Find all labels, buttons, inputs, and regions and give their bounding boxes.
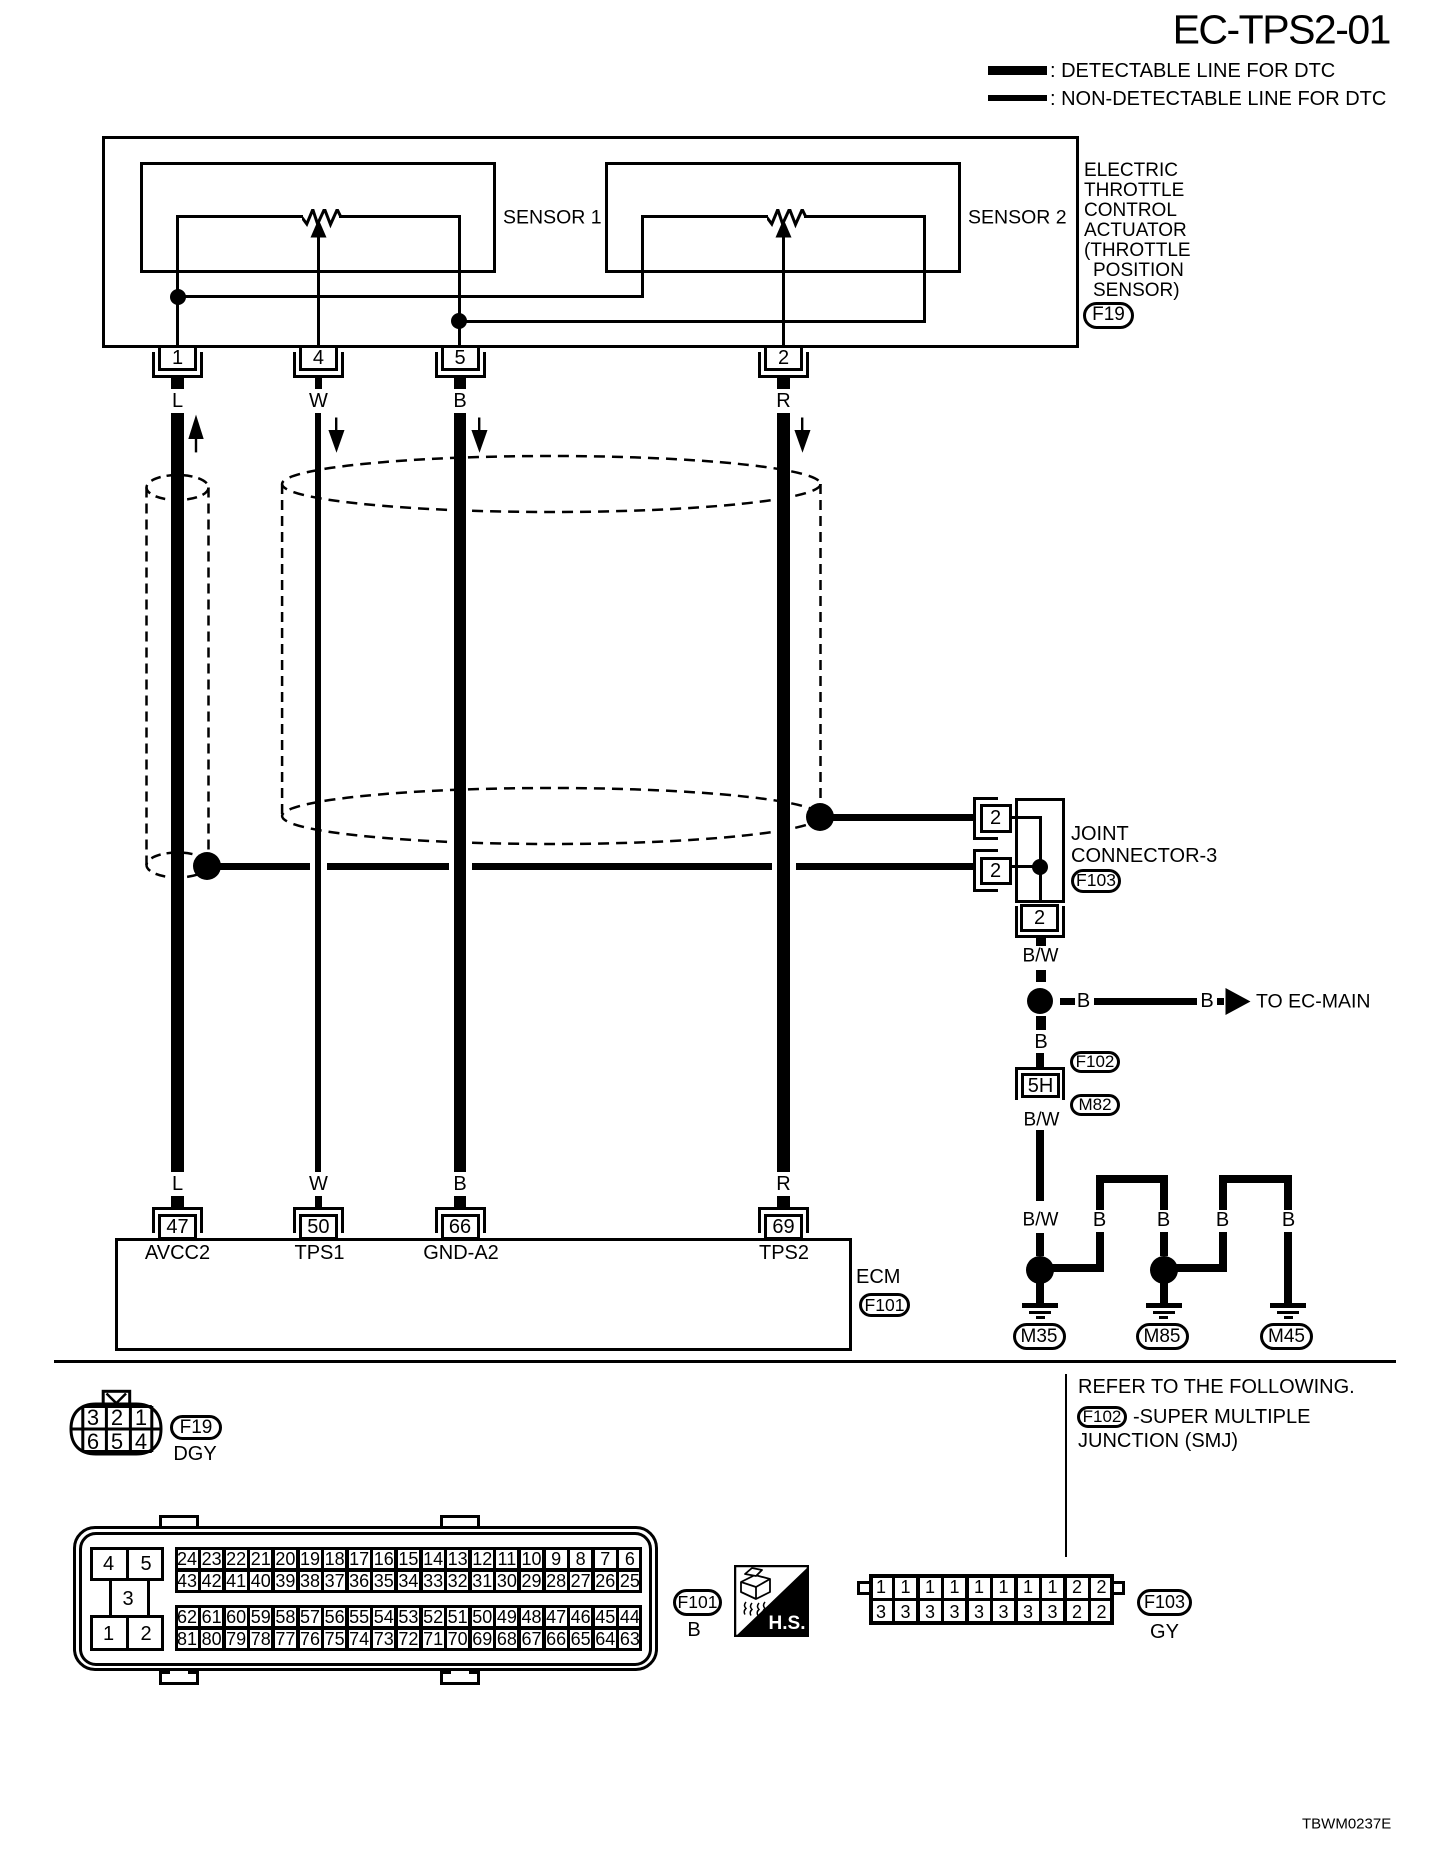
- svg-text:H.S.: H.S.: [769, 1613, 806, 1634]
